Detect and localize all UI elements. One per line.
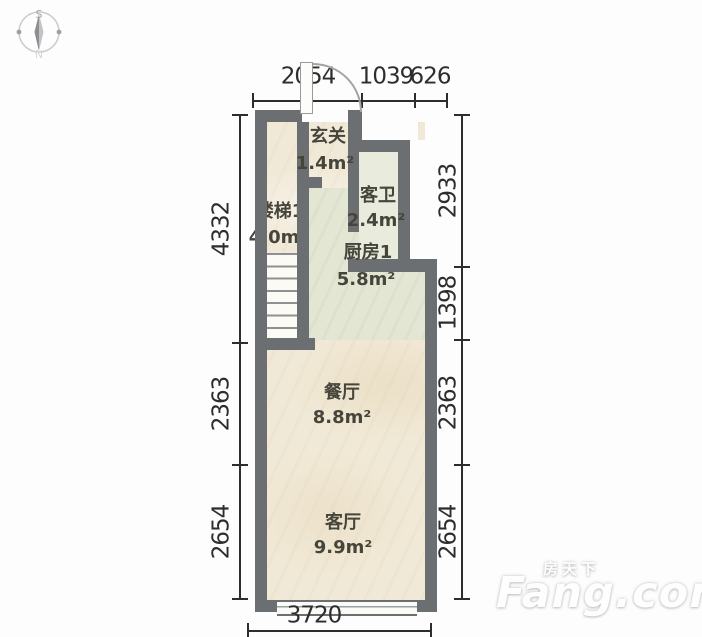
dim-tick — [252, 93, 254, 108]
dim-tick — [232, 598, 248, 600]
room-label-entry: 玄关 — [310, 128, 346, 146]
room-area-entry: 1.4m² — [296, 155, 355, 173]
dim-tick — [446, 93, 448, 108]
entry-door-swing-arc — [300, 55, 372, 117]
dim-right-1398: 1398 — [438, 276, 461, 331]
dim-right-2363: 2363 — [438, 376, 461, 431]
dim-tick — [414, 93, 416, 108]
wall-outer-top-left — [255, 110, 302, 122]
wall-bottom-right-post — [417, 600, 437, 612]
room-label-kitchen: 厨房1 — [344, 244, 393, 262]
dim-tick — [454, 464, 470, 466]
compass-north-label: N — [35, 48, 43, 61]
stair-treads — [267, 253, 297, 341]
dim-left-4332: 4332 — [211, 202, 234, 257]
dim-left-2654: 2654 — [211, 505, 234, 560]
wall-outer-left — [255, 110, 267, 612]
compass-icon: S N — [12, 5, 66, 61]
room-label-bath: 客卫 — [360, 187, 396, 205]
wall-bath-right — [398, 140, 410, 272]
room-area-living: 9.9m² — [314, 539, 373, 557]
room-area-dining: 8.8m² — [313, 409, 372, 427]
room-area-kitchen: 5.8m² — [337, 271, 396, 289]
dim-tick — [454, 114, 470, 116]
wall-entry-kitchen — [297, 177, 322, 188]
dim-line-left — [239, 115, 241, 600]
dim-tick — [247, 623, 249, 637]
dim-tick — [454, 339, 470, 341]
floor-plan: S N 楼梯1 4.0m² 玄关 1.4m² 客卫 2.4m² 厨房1 5.8m… — [0, 0, 702, 637]
dim-bottom-3720: 3720 — [287, 605, 342, 628]
wall-under-stairs — [255, 338, 315, 350]
room-label-living: 客厅 — [325, 514, 361, 532]
dim-top-626: 626 — [410, 66, 451, 89]
dim-tick — [430, 623, 432, 637]
dim-tick — [454, 598, 470, 600]
room-area-bath: 2.4m² — [347, 212, 406, 230]
dim-tick — [232, 114, 248, 116]
dim-tick — [232, 342, 248, 344]
room-label-dining: 餐厅 — [324, 384, 360, 402]
dim-tick — [232, 464, 248, 466]
dim-line-bottom — [247, 630, 432, 632]
wall-bottom-left-post — [255, 600, 277, 612]
dim-left-2363: 2363 — [211, 377, 234, 432]
dim-tick — [454, 266, 470, 268]
watermark-brand-en: Fang.com — [496, 568, 702, 618]
compass-south-label: S — [36, 8, 43, 21]
dim-right-2654: 2654 — [438, 505, 461, 560]
dim-right-2933: 2933 — [438, 164, 461, 219]
